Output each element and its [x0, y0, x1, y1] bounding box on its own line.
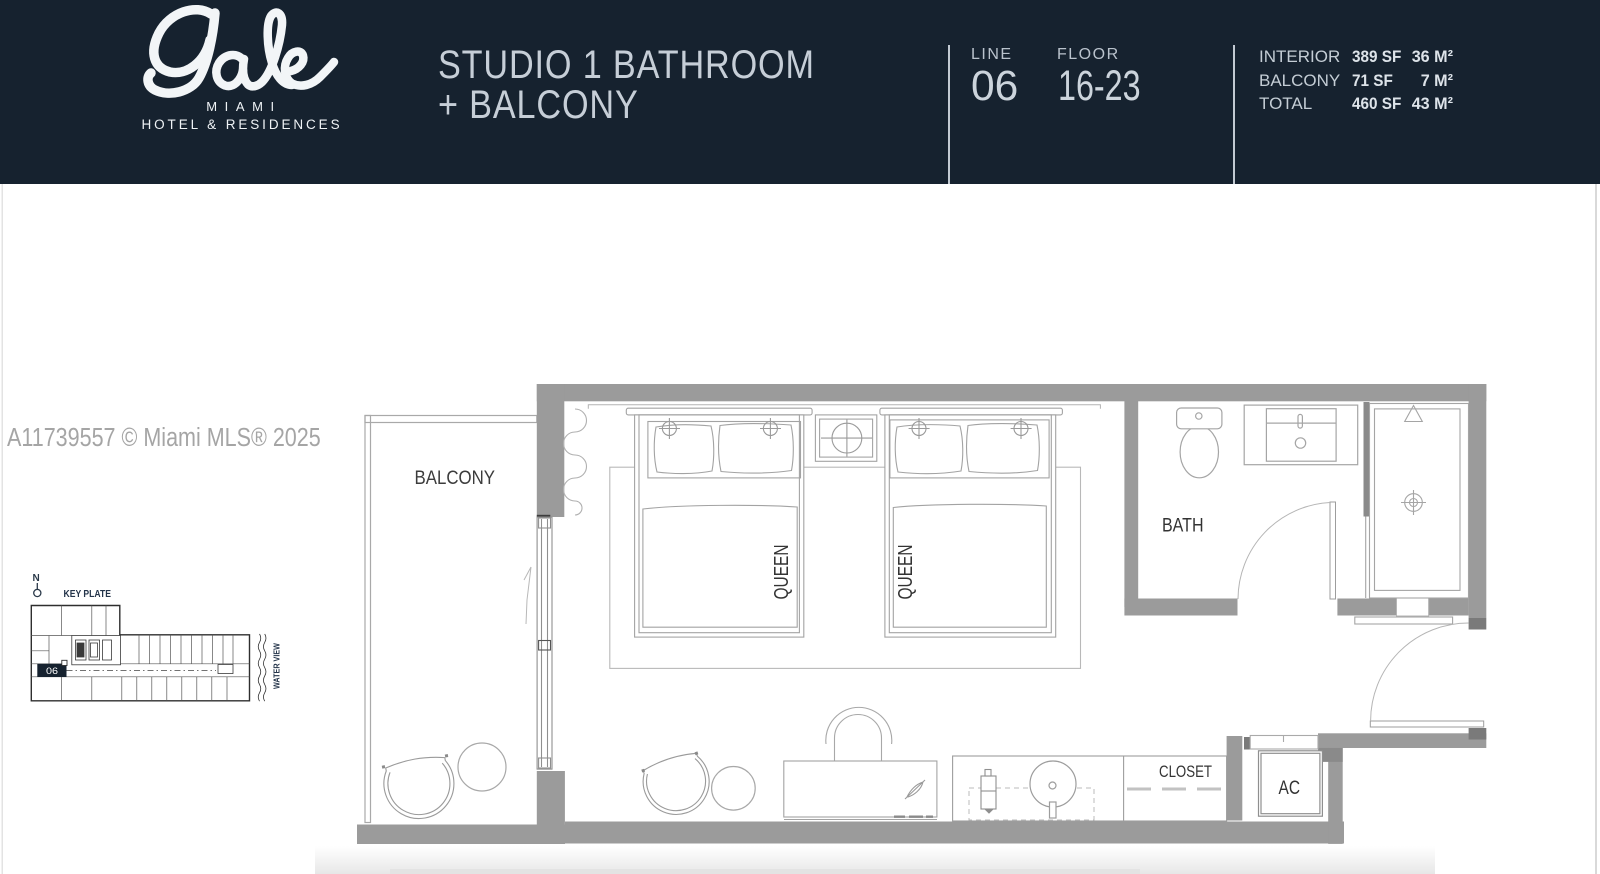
svg-text:N: N: [33, 573, 40, 584]
svg-text:QUEEN: QUEEN: [895, 545, 917, 600]
svg-text:AC: AC: [1279, 777, 1301, 799]
svg-text:BATH: BATH: [1162, 516, 1204, 537]
svg-text:QUEEN: QUEEN: [771, 545, 793, 600]
svg-text:06: 06: [46, 666, 58, 676]
svg-text:KEY PLATE: KEY PLATE: [64, 589, 112, 600]
svg-text:BALCONY: BALCONY: [415, 468, 496, 489]
svg-text:CLOSET: CLOSET: [1159, 763, 1212, 781]
svg-text:WATER VIEW: WATER VIEW: [272, 642, 282, 689]
